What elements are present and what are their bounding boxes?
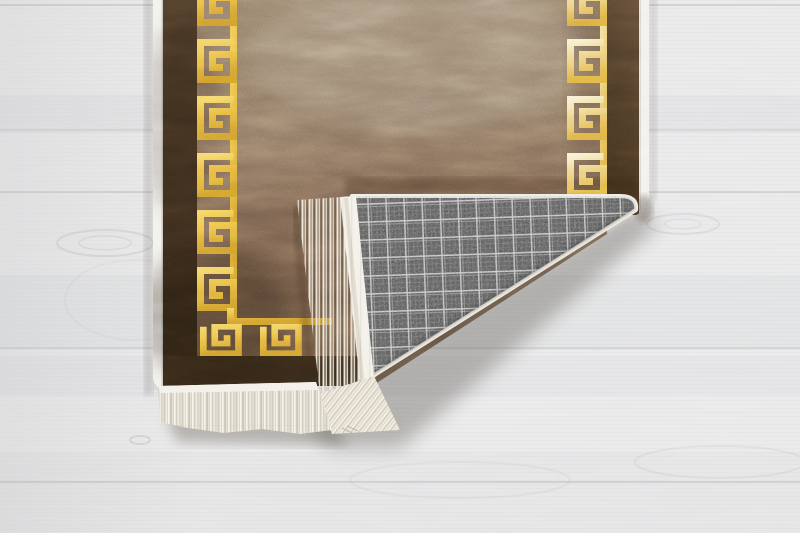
rug-product-photo (0, 0, 800, 533)
left-edge-shadow (144, 0, 153, 395)
right-edge-shadow (649, 0, 657, 200)
scene (0, 0, 800, 533)
